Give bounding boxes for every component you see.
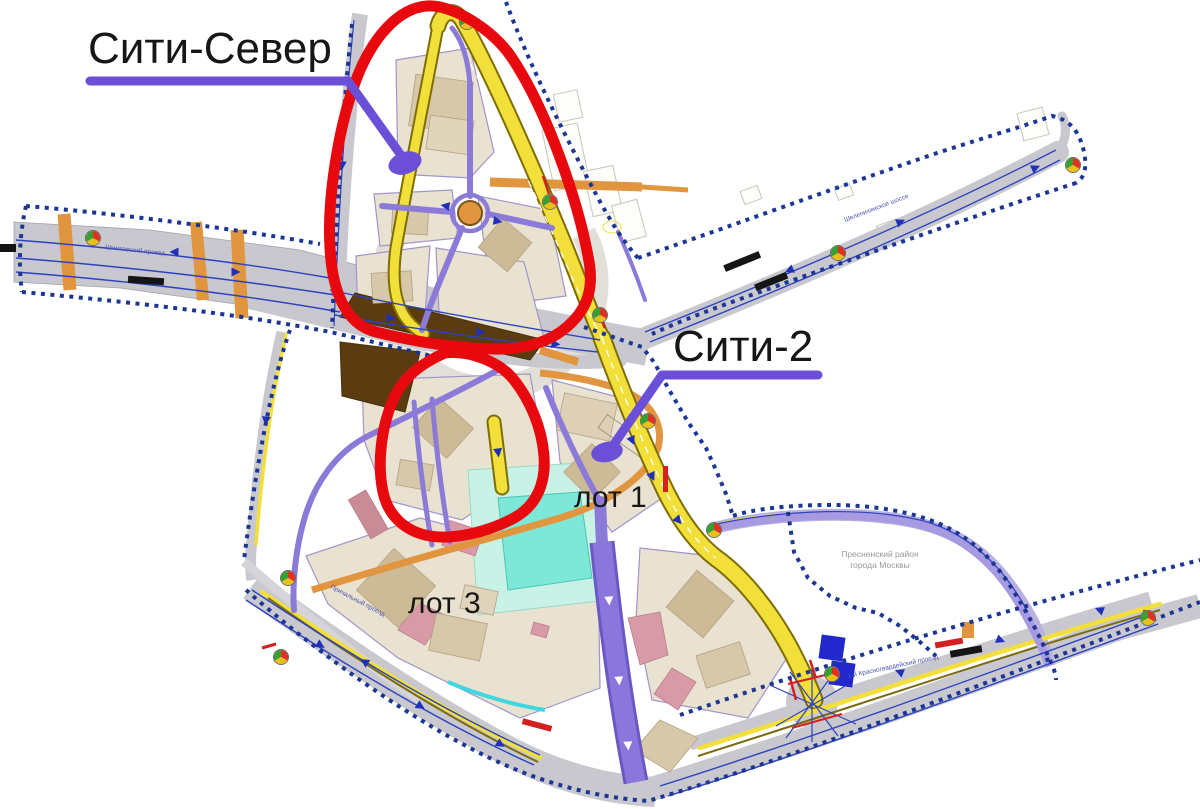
traffic-light-icon [825,667,840,682]
traffic-light-icon [1141,611,1156,626]
purple-band-road [602,542,636,782]
lot-3-label: лот 3 [408,589,481,619]
lot-1-label: лот 1 [574,483,647,513]
city-2-label: Сити-2 [673,325,813,369]
traffic-light-icon [1066,158,1081,173]
traffic-light-icon [831,246,846,261]
city-plan-map: Шмитовский проезд Шелепихинское шоссе Пр… [0,0,1200,809]
district-note-line1: Пресненский район [841,549,919,559]
city-north-label: Сити-Север [88,27,332,71]
plan-map-screenshot: Шмитовский проезд Шелепихинское шоссе Пр… [0,0,1200,809]
traffic-light-icon [274,650,289,665]
traffic-light-icon [86,231,101,246]
traffic-light-icon [543,195,558,210]
traffic-light-icon [707,523,722,538]
roundabout [458,201,482,225]
traffic-light-icon [641,414,656,429]
traffic-light-icon [593,308,608,323]
district-note: Пресненский район города Москвы [841,549,919,570]
district-note-line2: города Москвы [850,560,909,570]
traffic-light-icon [281,571,296,586]
